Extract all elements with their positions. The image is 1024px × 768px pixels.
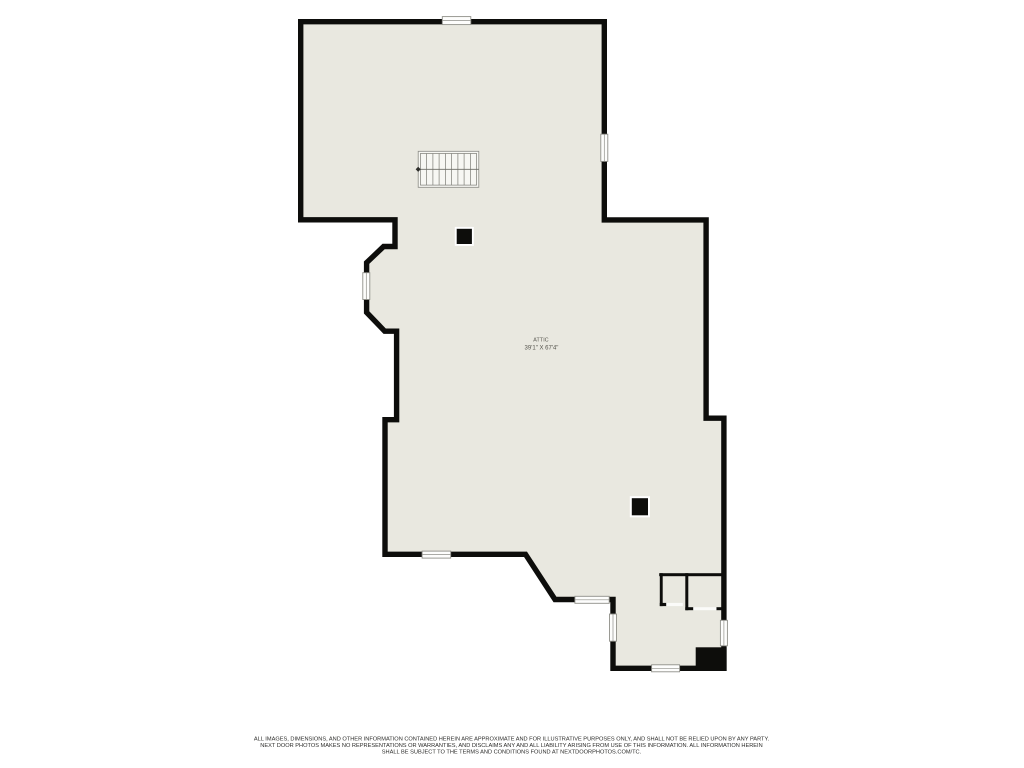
svg-text:ALL IMAGES, DIMENSIONS, AND OT: ALL IMAGES, DIMENSIONS, AND OTHER INFORM… — [254, 737, 770, 743]
svg-text:NEXT DOOR PHOTOS MAKES NO REPR: NEXT DOOR PHOTOS MAKES NO REPRESENTATION… — [260, 743, 762, 749]
svg-text:39'1" X 67'4": 39'1" X 67'4" — [525, 345, 559, 351]
svg-text:ATTIC: ATTIC — [533, 338, 548, 344]
svg-text:SHALL BE SUBJECT TO THE TERMS: SHALL BE SUBJECT TO THE TERMS AND CONDIT… — [382, 750, 642, 756]
